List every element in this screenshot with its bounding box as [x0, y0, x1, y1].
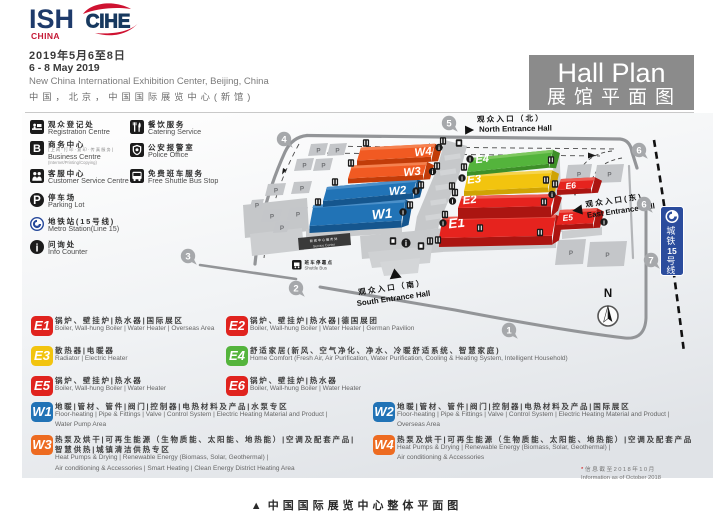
svg-text:P: P — [302, 163, 306, 170]
svg-text:Service Center: Service Center — [313, 242, 337, 248]
svg-text:P: P — [33, 195, 41, 207]
svg-text:P: P — [607, 172, 611, 179]
svg-text:i: i — [35, 242, 38, 254]
svg-text:i: i — [415, 188, 417, 195]
svg-text:N: N — [604, 288, 612, 300]
svg-text:E4: E4 — [475, 153, 490, 166]
svg-text:2: 2 — [293, 283, 298, 294]
svg-text:城: 城 — [666, 226, 677, 236]
svg-text:6: 6 — [641, 199, 646, 210]
svg-text:P: P — [280, 225, 284, 232]
svg-text:W1: W1 — [371, 206, 393, 223]
svg-text:i: i — [405, 239, 407, 248]
svg-text:1: 1 — [506, 325, 512, 336]
svg-text:i: i — [402, 209, 404, 216]
svg-text:4: 4 — [281, 134, 287, 145]
svg-text:5: 5 — [446, 118, 452, 129]
svg-text:3: 3 — [185, 251, 190, 262]
svg-text:P: P — [335, 148, 339, 155]
svg-text:i: i — [438, 145, 440, 152]
svg-text:i: i — [551, 192, 553, 199]
svg-text:P: P — [605, 252, 609, 259]
svg-text:P: P — [274, 188, 278, 195]
svg-text:线: 线 — [666, 265, 677, 276]
svg-text:P: P — [255, 203, 259, 210]
svg-text:E6: E6 — [565, 180, 577, 191]
svg-text:P: P — [569, 250, 573, 257]
svg-text:P: P — [577, 172, 581, 179]
svg-text:North Entrance Hall: North Entrance Hall — [479, 124, 552, 134]
svg-text:i: i — [461, 175, 463, 182]
svg-text:P: P — [300, 186, 304, 193]
svg-text:i: i — [452, 198, 454, 205]
svg-text:P: P — [316, 148, 320, 155]
svg-text:6: 6 — [636, 145, 641, 156]
svg-text:观众入口（北）: 观众入口（北） — [477, 113, 545, 124]
svg-text:P: P — [270, 214, 274, 221]
svg-text:CIHE: CIHE — [86, 12, 131, 33]
svg-text:W3: W3 — [403, 166, 422, 180]
svg-text:E5: E5 — [562, 212, 574, 223]
svg-text:7: 7 — [648, 255, 653, 266]
svg-text:B: B — [33, 143, 41, 155]
svg-text:P: P — [296, 212, 300, 219]
svg-text:i: i — [603, 219, 605, 226]
svg-text:W2: W2 — [388, 185, 407, 199]
svg-text:铁: 铁 — [666, 235, 677, 246]
svg-text:15: 15 — [667, 246, 677, 256]
svg-text:i: i — [432, 169, 434, 176]
svg-text:i: i — [469, 156, 471, 163]
svg-text:Shuttle Bus: Shuttle Bus — [305, 266, 328, 271]
svg-text:W4: W4 — [414, 146, 433, 160]
svg-text:P: P — [321, 163, 325, 170]
svg-text:号: 号 — [666, 256, 677, 266]
svg-text:i: i — [442, 220, 444, 227]
